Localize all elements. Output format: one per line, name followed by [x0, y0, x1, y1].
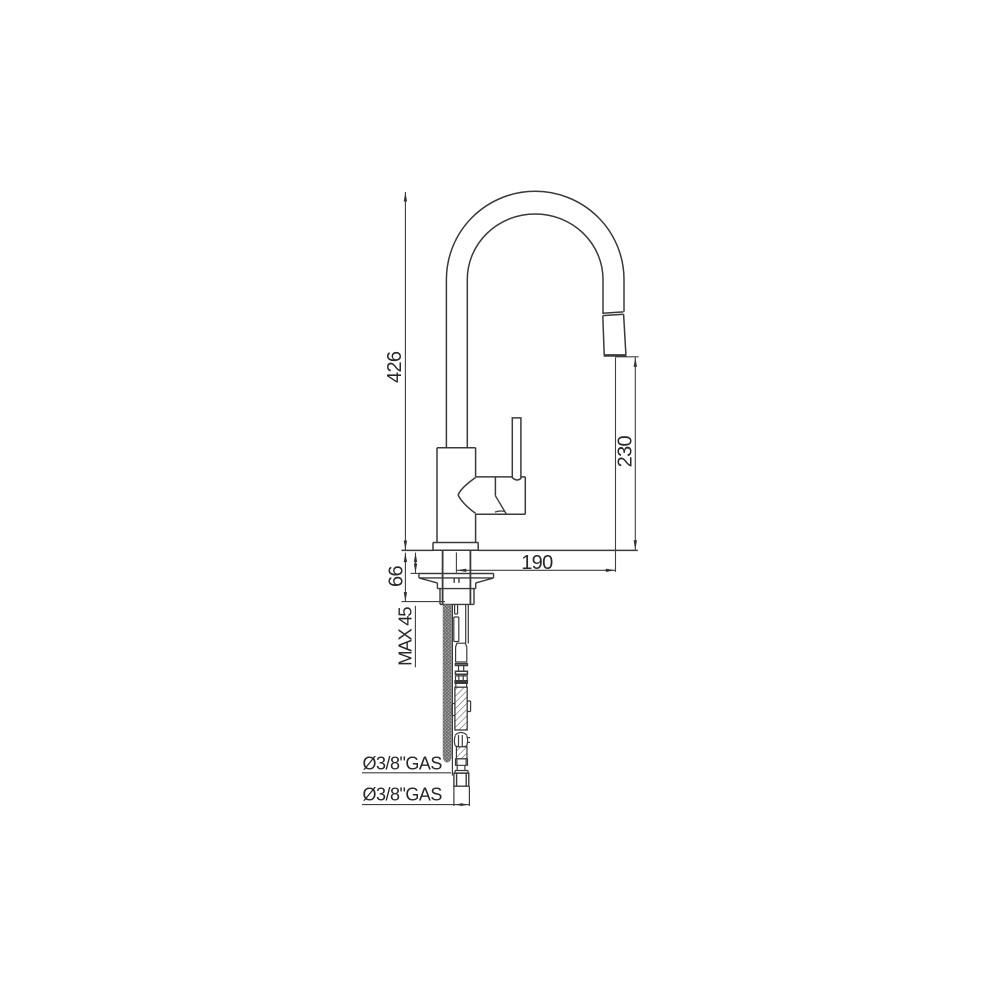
svg-text:Ø3/8"GAS: Ø3/8"GAS	[363, 754, 443, 774]
svg-text:230: 230	[614, 435, 636, 467]
svg-text:190: 190	[521, 552, 553, 574]
svg-text:426: 426	[384, 351, 406, 383]
svg-text:66: 66	[385, 566, 407, 587]
svg-text:MAX 45: MAX 45	[394, 607, 415, 666]
svg-text:Ø3/8"GAS: Ø3/8"GAS	[363, 784, 443, 804]
